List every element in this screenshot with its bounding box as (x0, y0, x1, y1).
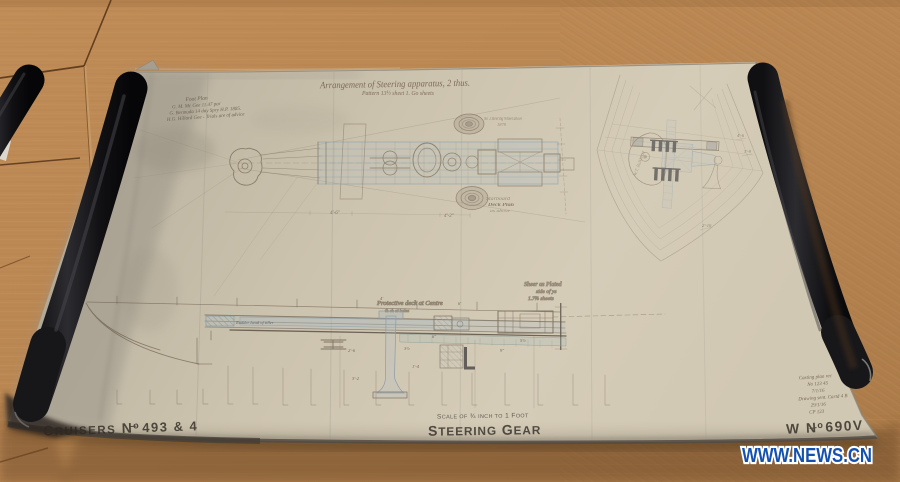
svg-text:1'-4: 1'-4 (412, 364, 420, 369)
svg-text:Pattern 13½ sheet 1. Go sheets: Pattern 13½ sheet 1. Go sheets (361, 90, 435, 97)
svg-text:Starboard: Starboard (486, 197, 511, 202)
svg-text:Sheer as Plated: Sheer as Plated (524, 282, 563, 288)
svg-text:3'-2: 3'-2 (352, 376, 360, 381)
svg-text:2'-10: 2'-10 (702, 223, 712, 228)
svg-text:2'-6: 2'-6 (348, 348, 356, 353)
svg-text:6": 6" (432, 334, 436, 339)
svg-text:as above: as above (490, 208, 510, 213)
svg-text:1.7⅞ sheets: 1.7⅞ sheets (528, 296, 554, 302)
svg-text:Rudder head of tiller: Rudder head of tiller (235, 320, 274, 325)
svg-text:3½: 3½ (404, 346, 410, 351)
svg-text:4'-2": 4'-2" (444, 214, 455, 219)
svg-text:SCALE OF ¾ INCH TO 1 FOOT: SCALE OF ¾ INCH TO 1 FOOT (437, 412, 529, 420)
svg-text:5½: 5½ (520, 338, 526, 343)
svg-text:4'-6": 4'-6" (330, 211, 341, 216)
svg-text:side of ys: side of ys (536, 288, 556, 295)
svg-text:9": 9" (500, 348, 504, 353)
svg-text:Protective deck at Centre: Protective deck at Centre (376, 300, 443, 307)
svg-text:4'-6: 4'-6 (737, 133, 745, 138)
svg-text:1879: 1879 (497, 122, 507, 127)
svg-text:WWW.NEWS.CN: WWW.NEWS.CN (742, 445, 872, 467)
svg-text:3'-9: 3'-9 (744, 149, 752, 154)
svg-text:7/1/16: 7/1/16 (812, 389, 826, 395)
